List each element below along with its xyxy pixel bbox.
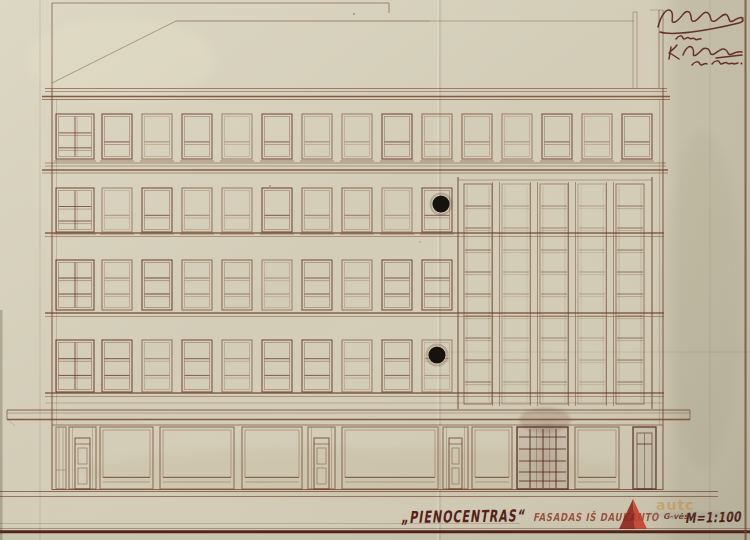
signature-dot: [741, 63, 743, 65]
watermark-text: autc: [656, 497, 694, 513]
punch-hole-top: [432, 195, 449, 212]
drawing-sheet: „PIENOCENTRAS“ FASADAS IŠ DAUKANTO G-vės…: [0, 0, 750, 540]
sheet-edge-shadow: [0, 310, 3, 540]
paper-bottom-shade: [0, 533, 750, 540]
title-project: „PIENOCENTRAS“: [401, 506, 526, 527]
watermark-subtext-smudge: [649, 512, 741, 518]
elevation-drawing: „PIENOCENTRAS“ FASADAS IŠ DAUKANTO G-vės…: [0, 0, 750, 540]
punch-hole-bottom: [428, 346, 445, 363]
